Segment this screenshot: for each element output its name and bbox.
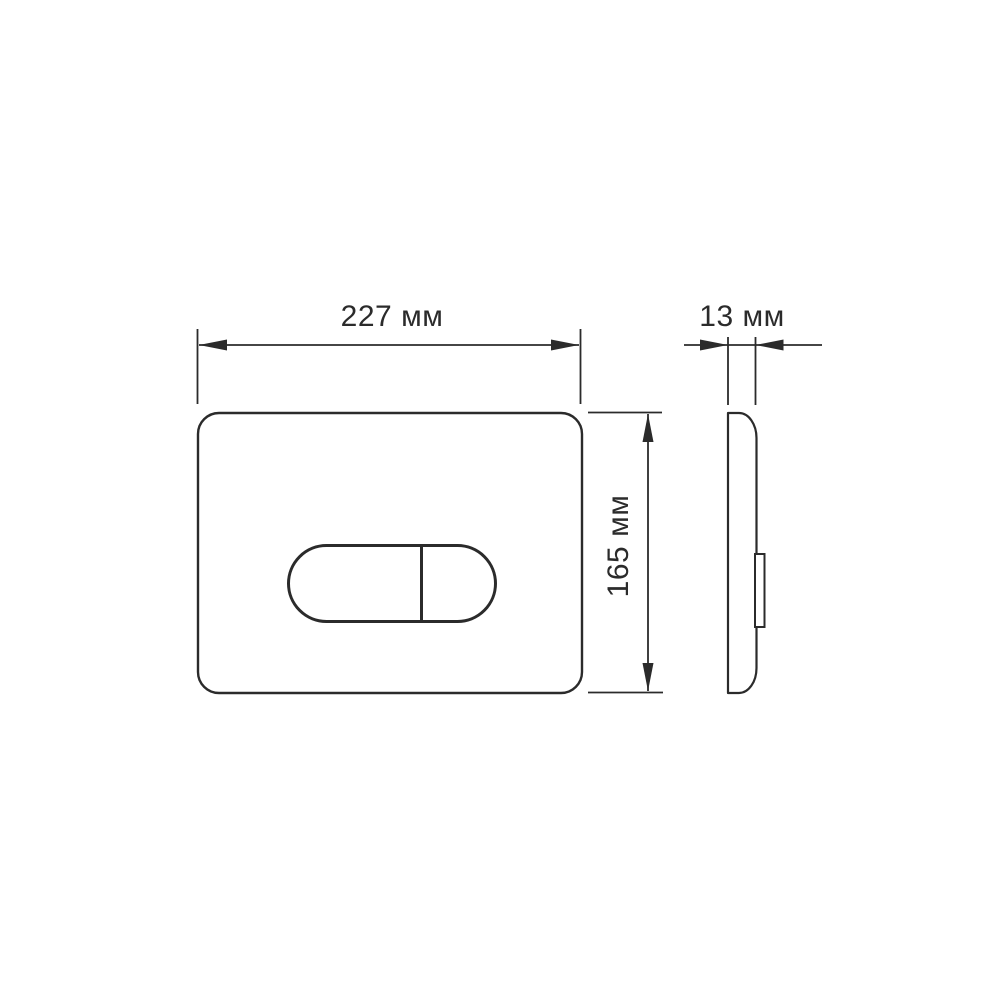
height-dimension-label: 165 мм — [602, 495, 636, 598]
height-arrowhead-top-icon — [643, 414, 654, 442]
side-view-mount-tab — [755, 554, 765, 627]
width-arrowhead-right-icon — [551, 340, 579, 351]
technical-drawing-canvas: 227 мм 13 мм 165 мм — [0, 0, 1000, 1000]
depth-arrowhead-right-icon — [756, 340, 784, 351]
depth-dimension-label: 13 мм — [699, 300, 784, 334]
side-view-outline — [728, 413, 757, 693]
width-arrowhead-left-icon — [199, 340, 227, 351]
depth-arrowhead-left-icon — [700, 340, 728, 351]
height-arrowhead-bottom-icon — [643, 663, 654, 691]
drawing-svg — [0, 0, 1000, 1000]
flush-button-pill-outline — [289, 546, 496, 622]
width-dimension-label: 227 мм — [341, 300, 444, 334]
